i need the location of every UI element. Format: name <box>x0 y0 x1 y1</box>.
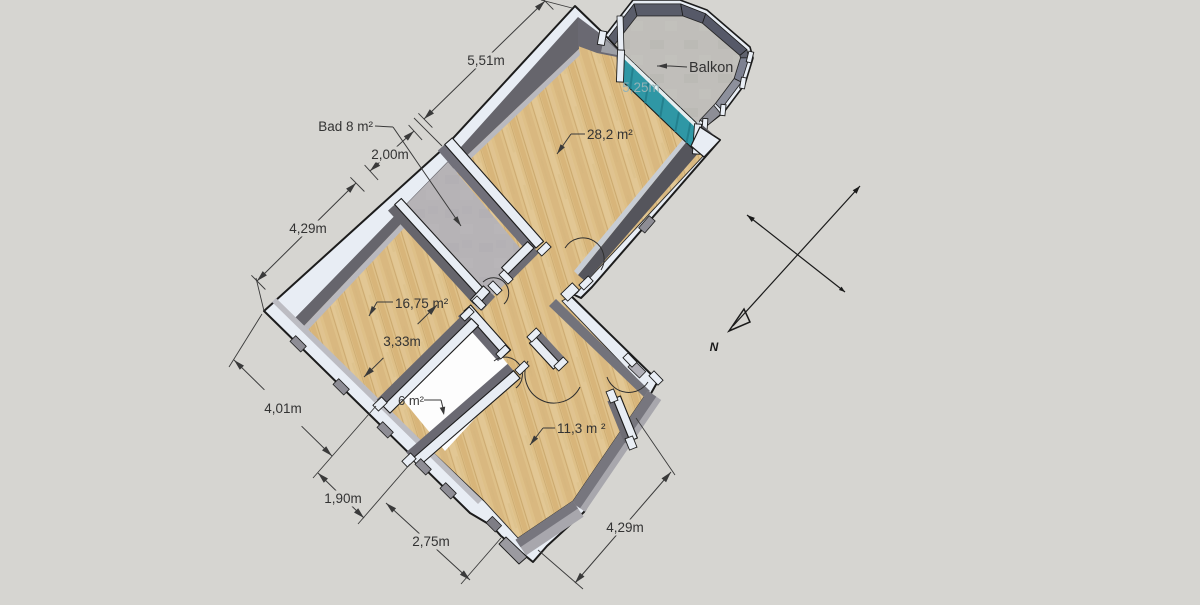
svg-text:6 m²: 6 m² <box>398 393 425 408</box>
svg-text:4,29m: 4,29m <box>606 520 644 535</box>
svg-text:Bad 8 m²: Bad 8 m² <box>318 119 373 134</box>
svg-text:2,75m: 2,75m <box>412 534 450 549</box>
svg-text:Balkon: Balkon <box>689 60 733 76</box>
svg-text:N: N <box>710 340 719 354</box>
svg-text:1,90m: 1,90m <box>324 491 362 506</box>
svg-text:16,75 m²: 16,75 m² <box>395 296 449 311</box>
svg-text:4,29m: 4,29m <box>289 221 327 236</box>
svg-text:28,2 m²: 28,2 m² <box>587 127 633 142</box>
svg-text:11,3 m ²: 11,3 m ² <box>557 421 606 436</box>
svg-text:3,33m: 3,33m <box>383 334 421 349</box>
svg-text:4,01m: 4,01m <box>264 401 302 416</box>
svg-text:5,25m: 5,25m <box>622 80 660 95</box>
svg-text:5,51m: 5,51m <box>467 53 505 68</box>
svg-text:2,00m: 2,00m <box>371 147 409 162</box>
